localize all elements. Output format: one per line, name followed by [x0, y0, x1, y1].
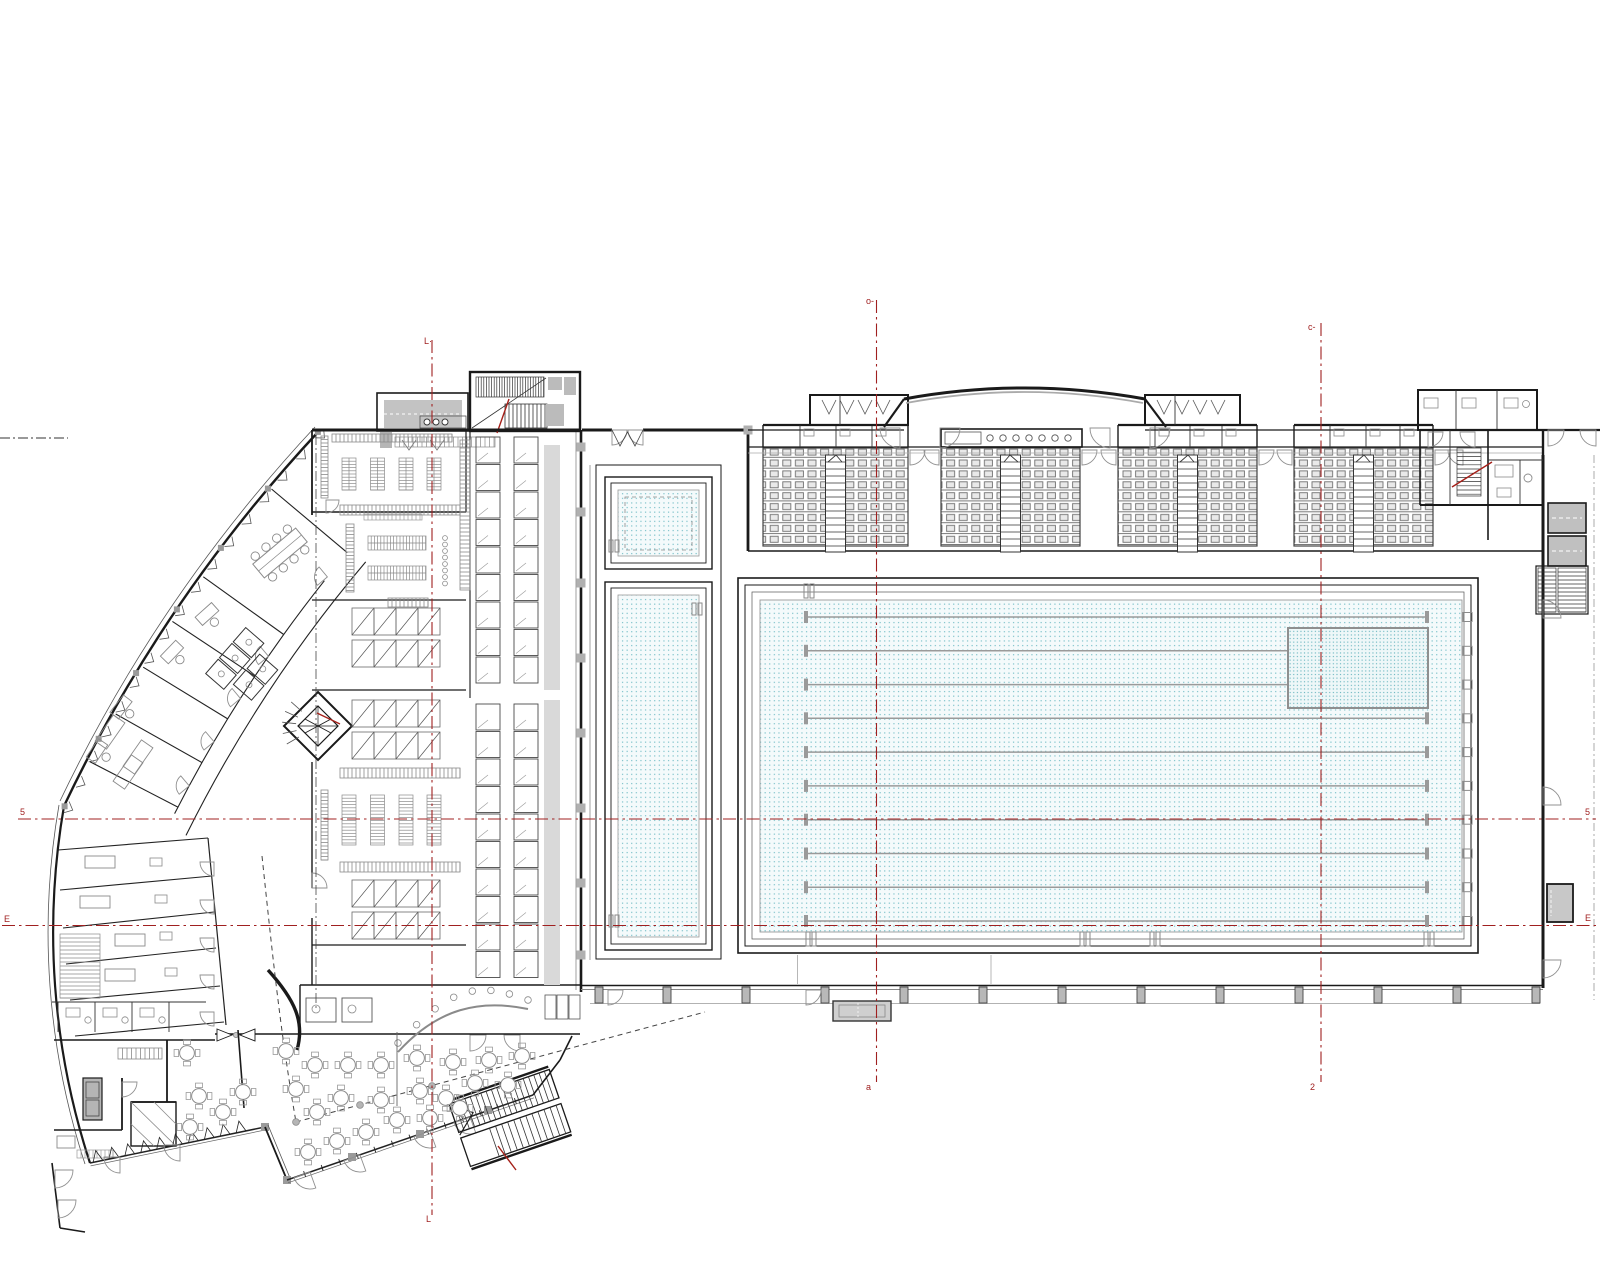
svg-text:5: 5 — [20, 807, 25, 817]
svg-text:c-: c- — [1308, 322, 1316, 332]
svg-text:a: a — [866, 1082, 871, 1092]
svg-text:E: E — [1585, 913, 1591, 923]
svg-text:5: 5 — [1585, 807, 1590, 817]
svg-text:L·: L· — [424, 336, 432, 346]
svg-text:E: E — [4, 914, 10, 924]
svg-text:o-: o- — [866, 296, 874, 306]
svg-text:L: L — [426, 1214, 431, 1224]
svg-text:2: 2 — [1310, 1082, 1315, 1092]
